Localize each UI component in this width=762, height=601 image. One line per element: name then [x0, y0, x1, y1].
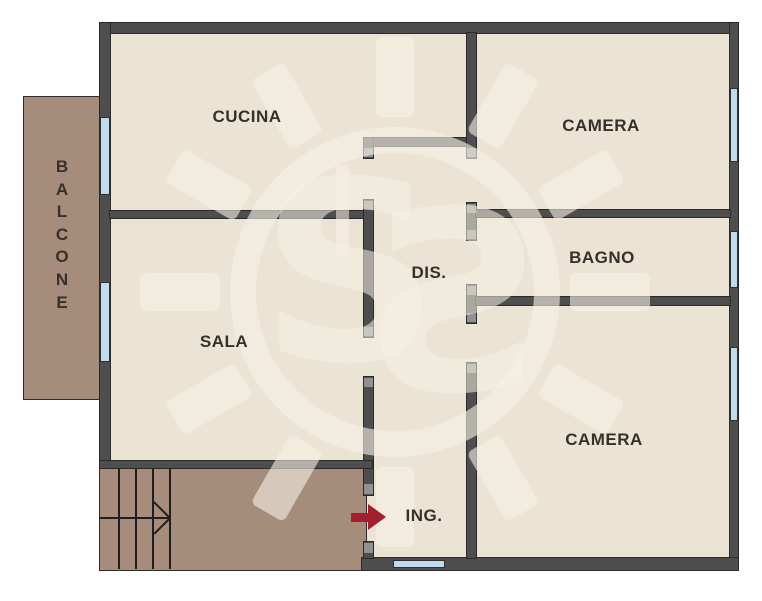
door-jamb — [467, 148, 476, 157]
door-jamb — [364, 148, 373, 157]
room-label-camera-sud: CAMERA — [565, 430, 643, 450]
room-label-bagno: BAGNO — [569, 248, 635, 268]
window-right-bagno — [730, 231, 738, 288]
door-jamb — [467, 364, 476, 373]
room-label-cucina: CUCINA — [212, 107, 281, 127]
wall-camera-bagno — [476, 210, 730, 217]
wall-sala-bottom — [100, 461, 372, 468]
door-jamb — [467, 204, 476, 213]
stair-step-line — [118, 469, 120, 569]
wall-corridor-right-c — [467, 363, 476, 558]
wall-bagno-camera — [476, 297, 730, 305]
window-left-upper — [100, 117, 110, 195]
wall-cucina-sala — [110, 211, 372, 218]
stair-step-line — [135, 469, 137, 569]
wall-outer-top — [100, 23, 738, 33]
door-jamb — [364, 378, 373, 387]
room-label-ingresso: ING. — [406, 506, 443, 526]
entrance-arrow-head-icon — [368, 504, 386, 530]
window-right-camera-sud — [730, 347, 738, 421]
room-label-sala: SALA — [200, 332, 248, 352]
door-jamb — [467, 286, 476, 295]
window-ingresso-bottom — [393, 560, 445, 568]
stair-direction-arrow — [100, 517, 170, 519]
wall-corridor-left-upper — [364, 200, 373, 337]
stair-step-line — [152, 469, 154, 569]
door-jamb — [364, 201, 373, 210]
door-jamb — [467, 313, 476, 322]
door-jamb — [364, 543, 373, 553]
wall-outer-left — [100, 23, 110, 468]
floor-plan: S S CUCINA CAMERA BAGNO DIS. SALA CAMERA… — [0, 0, 762, 601]
wall-cucina-corridor — [364, 138, 475, 146]
room-label-balcone: BALCONE — [53, 156, 72, 314]
stairwell-area — [99, 468, 367, 571]
wall-corridor-left-lower — [364, 377, 373, 495]
room-label-camera-nord: CAMERA — [562, 116, 640, 136]
door-jamb — [364, 484, 373, 494]
door-jamb — [467, 230, 476, 239]
room-label-disimpegno: DIS. — [411, 263, 446, 283]
door-jamb — [364, 327, 373, 336]
window-left-lower — [100, 282, 110, 362]
window-right-camera-nord — [730, 88, 738, 162]
wall-cucina-camera — [467, 33, 476, 158]
entrance-arrow-icon — [351, 513, 368, 522]
